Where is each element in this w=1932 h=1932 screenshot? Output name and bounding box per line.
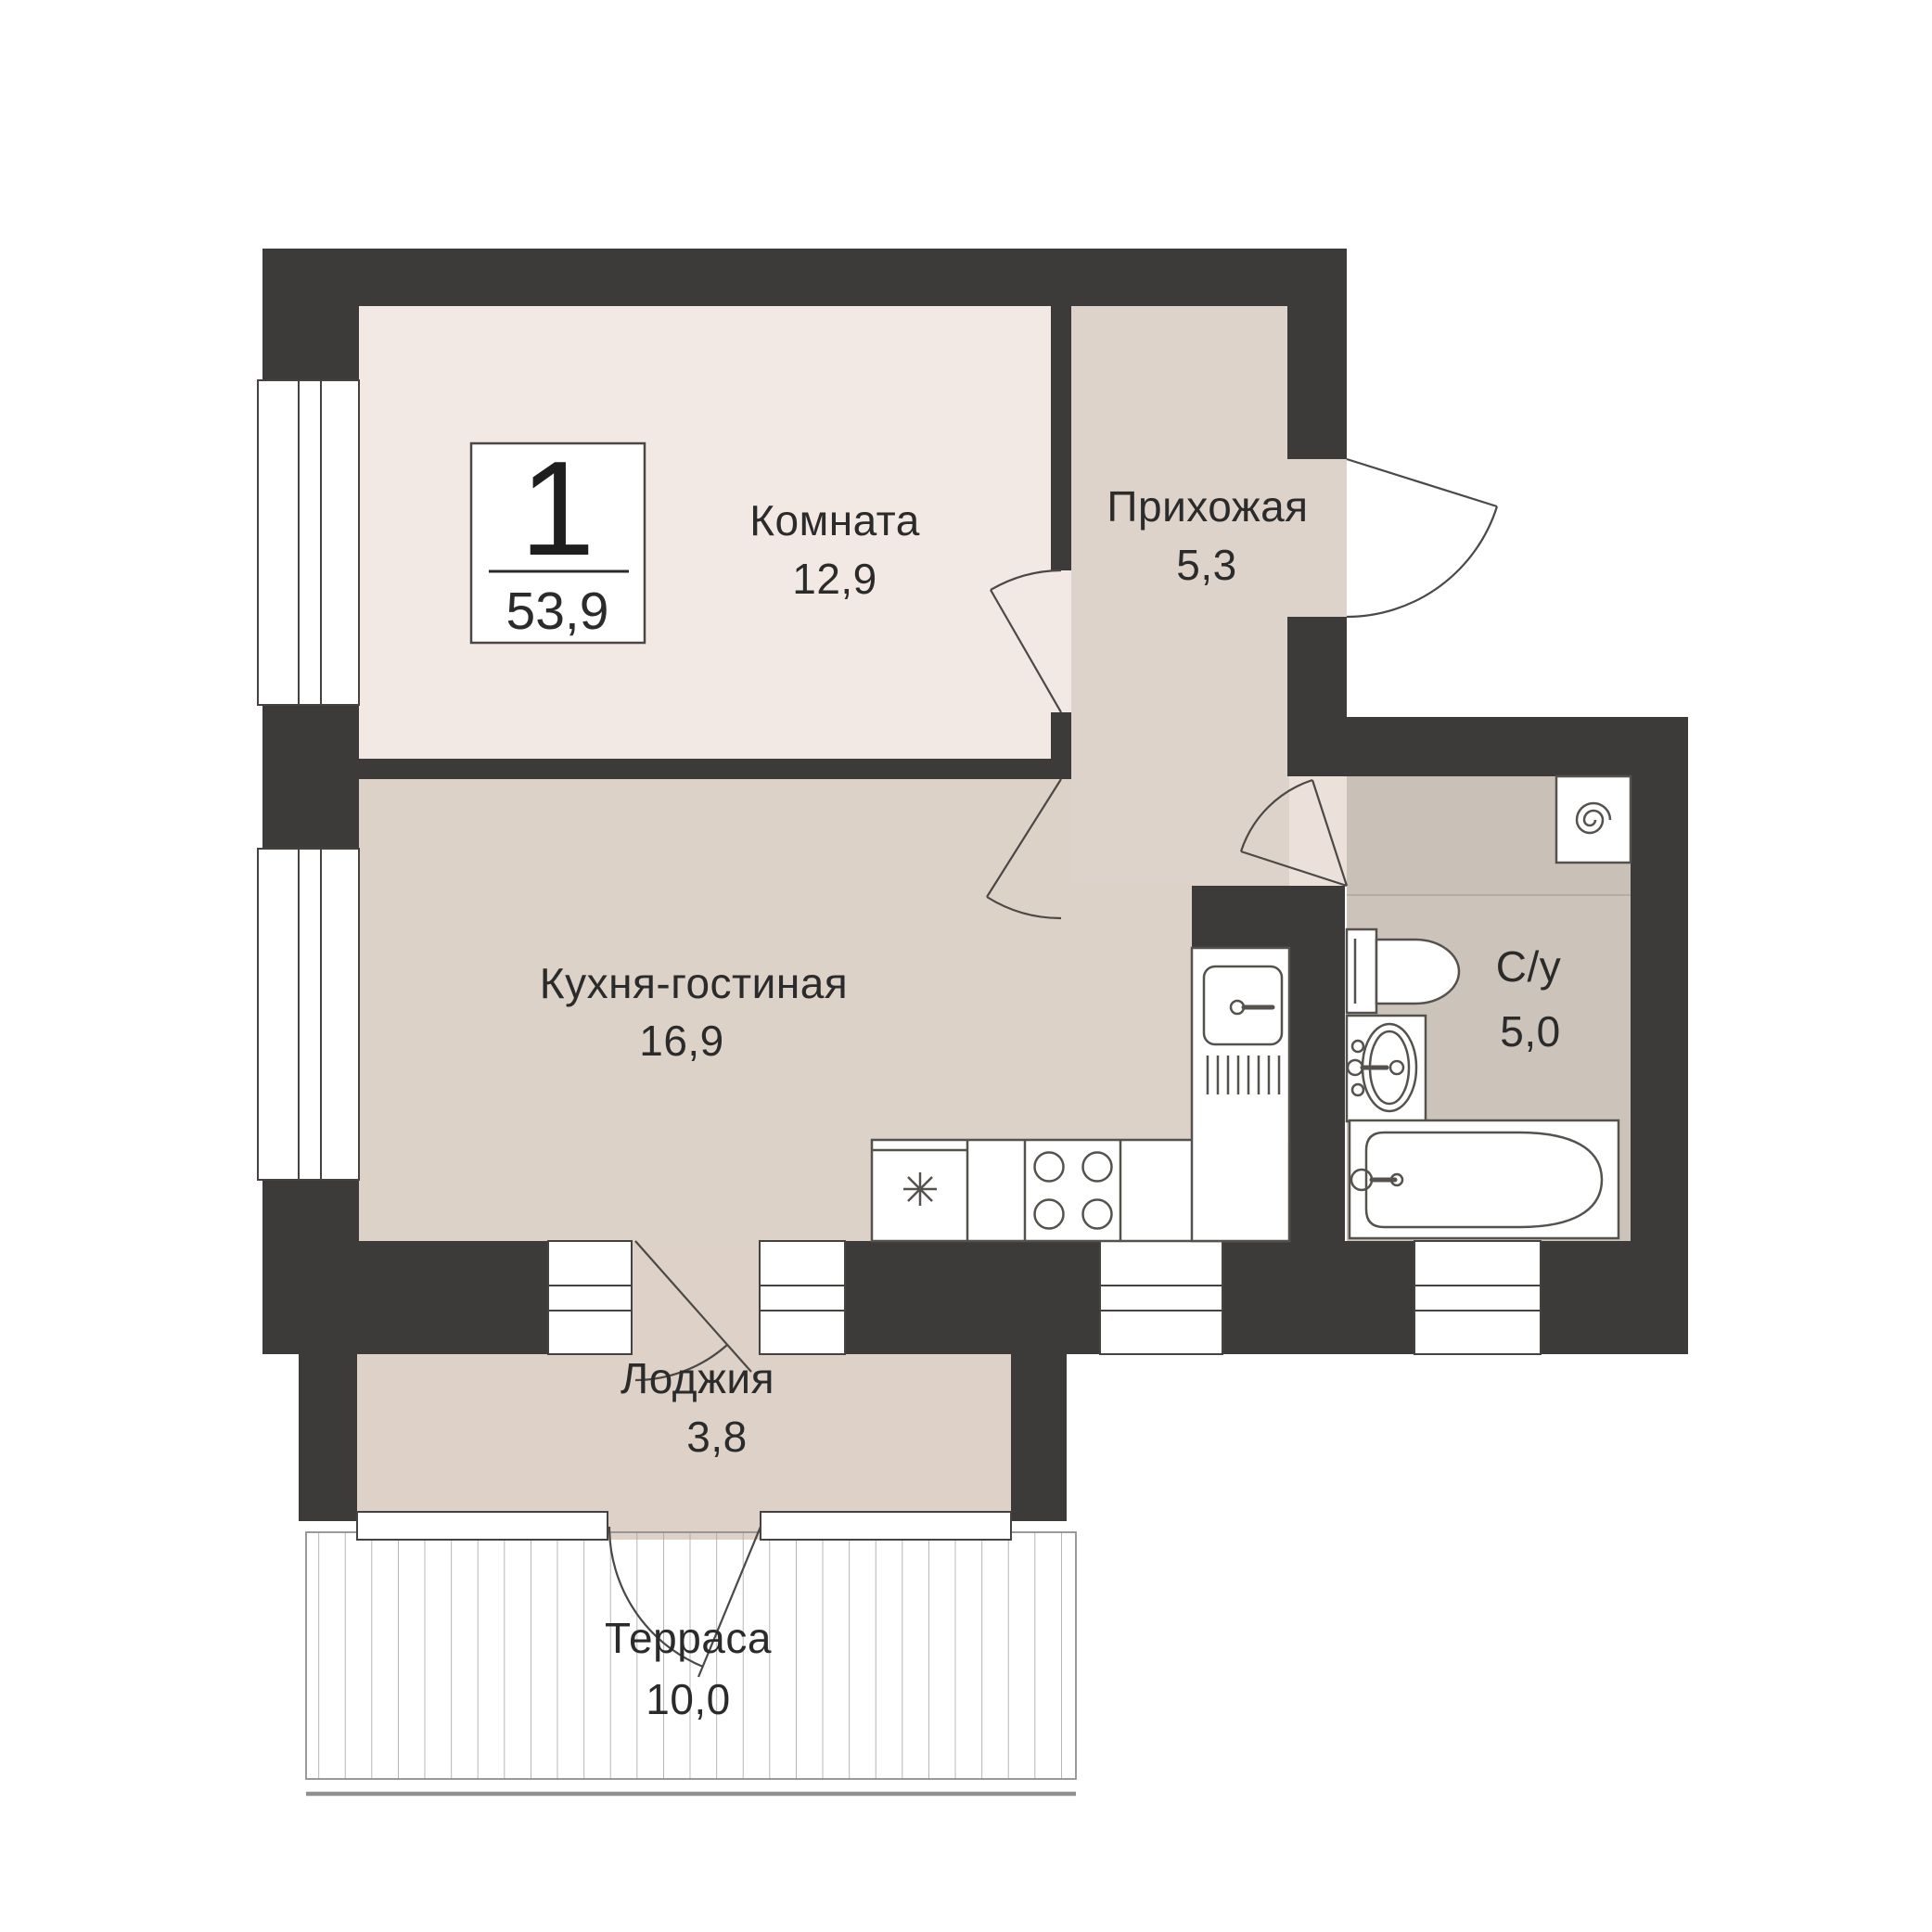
window-bottom-1 (548, 1241, 632, 1354)
window-bottom-2 (760, 1241, 845, 1354)
wall-loggia-right (1011, 1354, 1067, 1521)
loggia-glazing-left (357, 1512, 608, 1540)
label-loggia-area: 3,8 (686, 1413, 747, 1461)
window-kitchen-left (258, 849, 359, 1180)
wall-bottom-a (262, 1241, 548, 1354)
wall-partition-living-kitchen (359, 759, 1071, 779)
floor-plan-page: 1 53,9 Комната 12,9 Прихожая 5,3 Кухня-г… (0, 0, 1932, 1932)
wall-bottom-d (1541, 1241, 1688, 1354)
label-bath-name: С/у (1496, 942, 1562, 991)
label-living-name: Комната (749, 496, 920, 544)
label-living-area: 12,9 (792, 555, 877, 603)
badge-total-area: 53,9 (506, 582, 609, 641)
label-hall-area: 5,3 (1176, 541, 1236, 589)
label-bath-area: 5,0 (1500, 1007, 1560, 1056)
label-hall-name: Прихожая (1107, 482, 1308, 531)
label-loggia-name: Лоджия (621, 1354, 774, 1402)
label-terrace-name: Терраса (605, 1614, 772, 1662)
wall-bathroom-top (1287, 717, 1688, 776)
washbasin-icon (1347, 1016, 1426, 1121)
room-doorway-fill (1051, 570, 1071, 712)
wall-loggia-left (299, 1354, 357, 1521)
terrace (306, 1532, 1076, 1794)
wall-kitchen-bath-divider (1289, 948, 1345, 1241)
wall-hall-right-upper (1287, 306, 1347, 459)
floor-plan: 1 53,9 Комната 12,9 Прихожая 5,3 Кухня-г… (0, 0, 1932, 1932)
wall-bottom-c (1222, 1241, 1414, 1354)
window-bottom-3 (1100, 1241, 1222, 1354)
window-bathroom (1414, 1241, 1541, 1354)
entrance-door-swing (1347, 459, 1497, 617)
wall-top (262, 249, 1347, 306)
wall-partition-living-hall-stub (1051, 712, 1071, 779)
loggia-glazing-right (761, 1512, 1011, 1540)
wall-kitchen-bath-stub (1192, 886, 1345, 948)
label-kitchen-name: Кухня-гостиная (540, 959, 848, 1007)
badge-room-count: 1 (520, 433, 595, 583)
refrigerator-icon (903, 1172, 937, 1206)
bathtub-icon (1350, 1120, 1619, 1238)
window-living (258, 380, 359, 705)
apartment-badge: 1 53,9 (471, 433, 645, 643)
wall-partition-living-hall-upper (1051, 306, 1071, 570)
label-terrace-area: 10,0 (646, 1675, 731, 1723)
room-floor-living (359, 306, 1071, 779)
wall-bottom-b (845, 1241, 1100, 1354)
kitchen-sink-unit (1192, 948, 1289, 1241)
wall-hall-right-lower (1287, 617, 1347, 717)
label-kitchen-area: 16,9 (639, 1017, 724, 1065)
washing-machine-icon (1556, 776, 1631, 863)
